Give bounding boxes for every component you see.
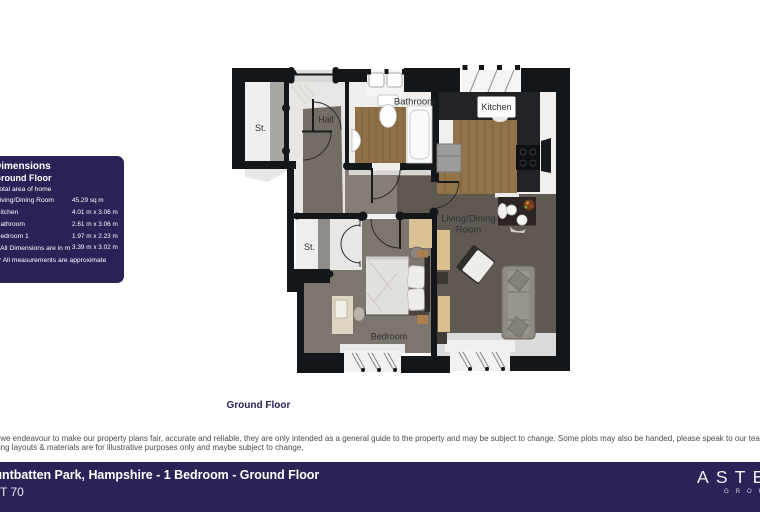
svg-text:Bedroom: Bedroom	[371, 332, 408, 342]
svg-text:Bathroom: Bathroom	[394, 97, 435, 108]
svg-text:Living/Dining: Living/Dining	[441, 214, 495, 225]
svg-text:St.: St.	[304, 242, 315, 252]
svg-text:St.: St.	[255, 123, 266, 133]
svg-text:Kitchen: Kitchen	[481, 102, 511, 112]
svg-text:Room: Room	[456, 225, 481, 236]
svg-text:Hall: Hall	[318, 115, 334, 125]
